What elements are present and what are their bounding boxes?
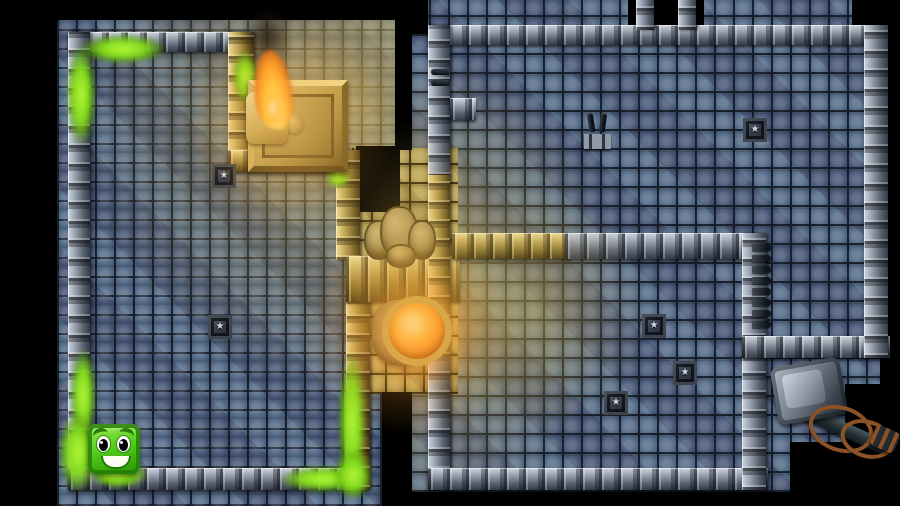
sledgehammer xyxy=(768,356,900,466)
wall-hook-peg xyxy=(752,310,771,317)
hammer-head-face xyxy=(781,369,826,409)
void-gap-top xyxy=(395,0,428,34)
void-gap-bottom xyxy=(382,392,412,506)
wall-hook-peg xyxy=(752,299,771,306)
slime-trail xyxy=(334,450,372,500)
player-eye xyxy=(117,436,130,452)
boulder-pile xyxy=(364,204,434,266)
torch-flame-core xyxy=(263,88,283,128)
star-icon: ★ xyxy=(650,321,659,331)
wall-hook-peg xyxy=(752,277,771,284)
pressure-plate[interactable]: ★ xyxy=(212,164,236,188)
wall-hook-peg xyxy=(752,266,771,273)
wall-right-room-bottom xyxy=(428,468,768,490)
player-pupil xyxy=(119,439,128,451)
star-icon: ★ xyxy=(751,125,760,135)
slime-trail xyxy=(66,44,96,146)
pressure-plate[interactable]: ★ xyxy=(673,361,697,385)
star-icon: ★ xyxy=(220,171,229,181)
star-icon: ★ xyxy=(216,322,225,332)
wall-right-room-divider xyxy=(565,233,748,259)
hook-prong xyxy=(431,69,449,75)
void-gap-upper xyxy=(395,34,412,150)
wall-top-stub-1 xyxy=(636,0,654,30)
player-mouth xyxy=(101,456,131,469)
hook-prong xyxy=(599,112,608,133)
void-top-right xyxy=(852,0,882,27)
wall-hook-peg xyxy=(752,255,771,262)
slime-trail xyxy=(80,34,166,64)
pressure-plate[interactable]: ★ xyxy=(604,391,628,415)
pressure-plate[interactable]: ★ xyxy=(642,314,666,338)
star-icon: ★ xyxy=(681,368,690,378)
wall-hook-peg xyxy=(752,321,771,328)
boulder xyxy=(386,244,416,268)
star-icon: ★ xyxy=(612,398,621,408)
hook-trap xyxy=(584,112,612,150)
beacon-orb[interactable] xyxy=(382,296,452,366)
game-viewport[interactable]: ★ ★ ★ ★ ★ ★ xyxy=(0,0,900,506)
player-eye xyxy=(97,436,110,452)
hook-trap xyxy=(431,66,457,92)
hook-prong xyxy=(587,112,596,133)
hook-base xyxy=(584,134,611,149)
hook-prong xyxy=(431,80,449,86)
void-notch-center xyxy=(356,146,400,212)
pressure-plate[interactable]: ★ xyxy=(208,315,232,339)
player-slime[interactable] xyxy=(88,424,140,474)
wall-right-room-divider-gold xyxy=(452,233,572,259)
wall-right-room-right xyxy=(864,25,888,358)
wall-right-room-left-top xyxy=(428,25,450,177)
wall-right-room-left-stub xyxy=(450,98,476,120)
pressure-plate[interactable]: ★ xyxy=(743,118,767,142)
player-pupil xyxy=(99,439,108,451)
wall-hook-peg xyxy=(752,288,771,295)
wall-top-stub-2 xyxy=(678,0,696,30)
wall-hook-peg xyxy=(752,244,771,251)
